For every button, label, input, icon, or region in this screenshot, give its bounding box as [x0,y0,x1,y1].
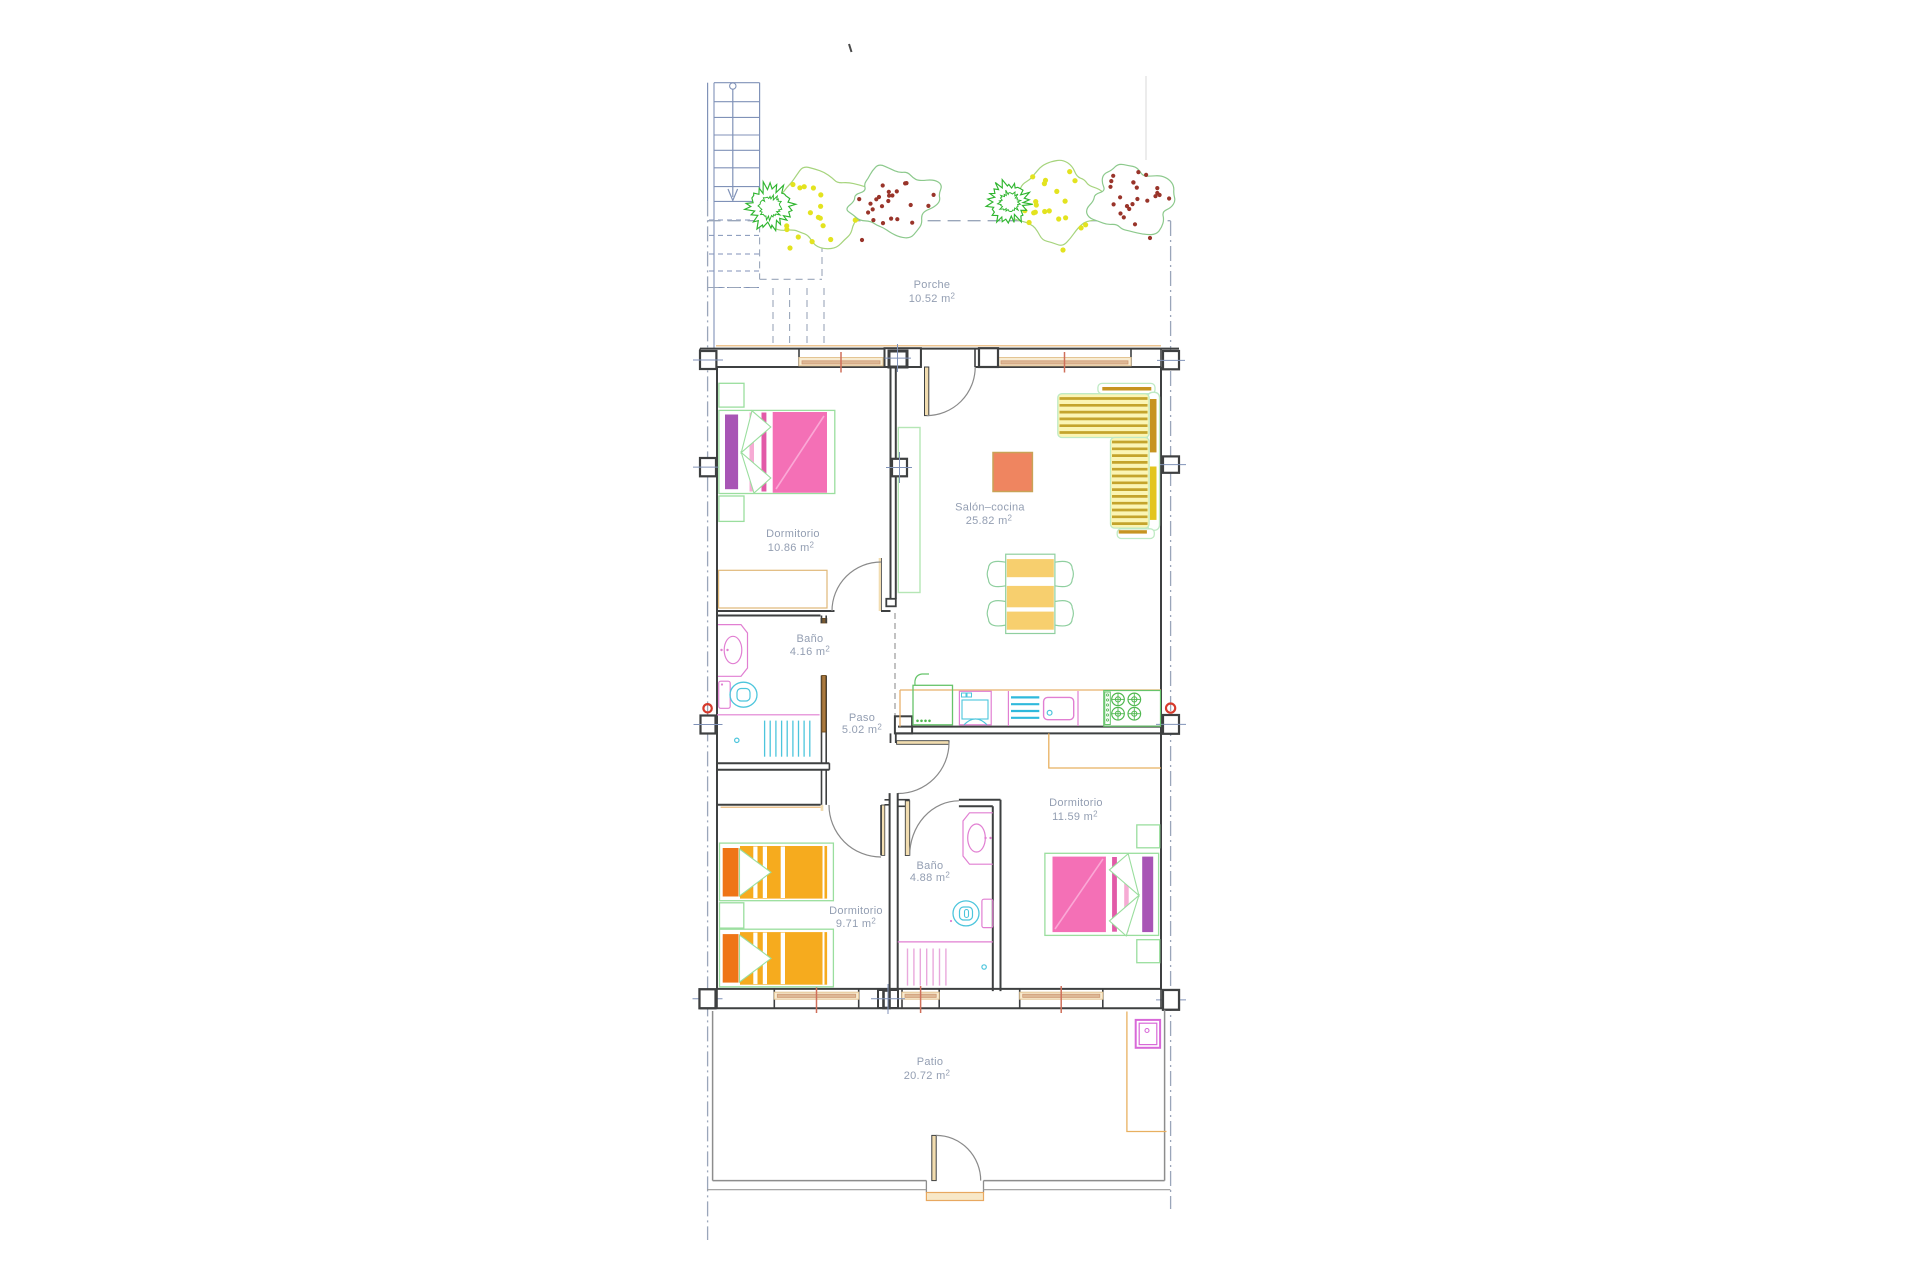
svg-text:Dormitorio: Dormitorio [766,528,820,540]
svg-text:Salón–cocina: Salón–cocina [955,502,1025,514]
svg-text:9.71 m2: 9.71 m2 [836,917,876,931]
svg-text:Porche: Porche [914,279,951,291]
svg-text:Dormitorio: Dormitorio [829,905,883,917]
svg-text:Baño: Baño [917,860,944,872]
svg-text:10.86 m2: 10.86 m2 [768,541,815,555]
svg-text:Dormitorio: Dormitorio [1049,797,1103,809]
svg-text:11.59 m2: 11.59 m2 [1052,810,1098,824]
svg-text:25.82 m2: 25.82 m2 [966,514,1013,528]
svg-text:4.16 m2: 4.16 m2 [790,645,830,659]
svg-text:20.72 m2: 20.72 m2 [904,1069,951,1083]
svg-text:5.02 m2: 5.02 m2 [842,723,882,737]
svg-text:10.52 m2: 10.52 m2 [909,292,956,306]
svg-text:4.88 m2: 4.88 m2 [910,871,950,885]
svg-text:Patio: Patio [917,1056,944,1068]
svg-text:Baño: Baño [797,633,824,645]
svg-text:Paso: Paso [849,712,875,724]
